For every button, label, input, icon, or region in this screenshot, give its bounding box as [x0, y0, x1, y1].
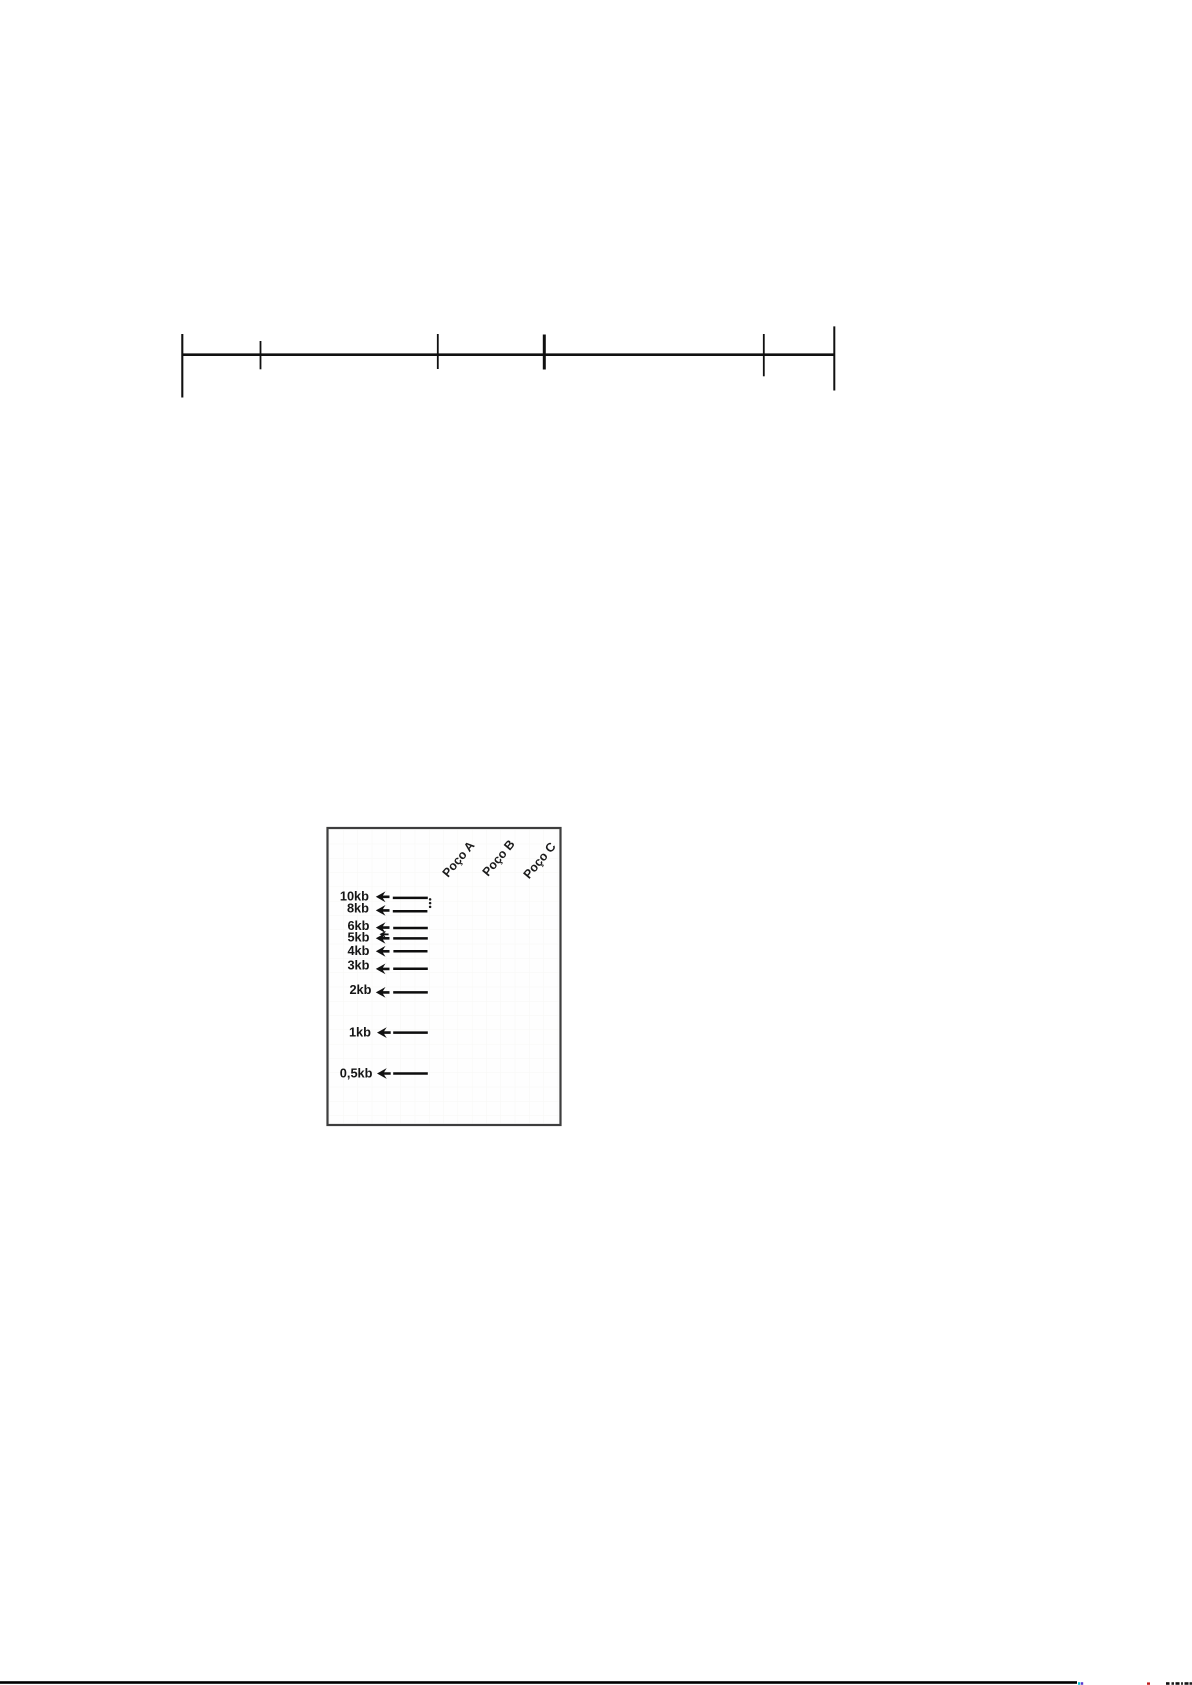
svg-text:1kb: 1kb	[349, 1025, 371, 1040]
svg-text:8kb: 8kb	[347, 900, 369, 915]
svg-text:0,5kb: 0,5kb	[340, 1066, 373, 1081]
svg-text:4kb: 4kb	[347, 943, 369, 958]
svg-text:3kb: 3kb	[347, 957, 369, 972]
svg-text:2kb: 2kb	[349, 982, 371, 997]
